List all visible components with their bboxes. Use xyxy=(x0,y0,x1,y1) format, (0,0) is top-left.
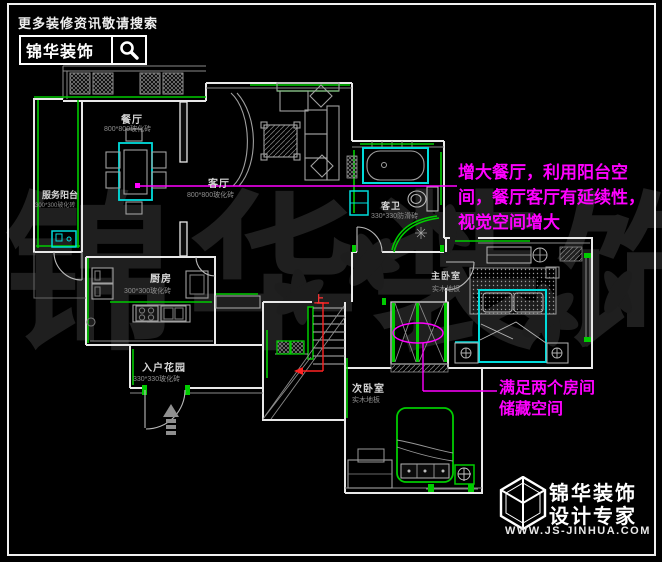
room-label-living: 客厅 xyxy=(208,175,230,190)
balcony-note-line3: 视觉空间增大 xyxy=(458,210,645,235)
balcony-door xyxy=(54,252,82,280)
room-material-dining: 800*800玻化砖 xyxy=(104,124,151,134)
room-label-kitchen: 厨房 xyxy=(150,270,172,285)
room-material-second-bedroom: 实木地板 xyxy=(352,395,380,405)
storage-note-line1: 满足两个房间 xyxy=(499,378,595,399)
balcony-note-line1: 增大餐厅，利用阳台空 xyxy=(458,160,645,185)
floorplan-canvas: 锦华装饰 xyxy=(0,0,662,562)
room-label-entry-garden: 入户花园 xyxy=(142,359,186,374)
sofa-seat xyxy=(305,134,327,158)
room-material-guest-bath: 330*330防滑砖 xyxy=(371,211,418,221)
living-room-furniture xyxy=(216,83,339,308)
room-material-service-balcony: 300*300玻化砖 xyxy=(35,200,75,209)
wall-pier xyxy=(347,156,357,178)
bathroom-fixtures xyxy=(347,148,438,239)
curtain-arc xyxy=(231,93,253,186)
footer-url[interactable]: WWW.JS-JINHUA.COM xyxy=(505,525,651,537)
header-tagline: 更多装修资讯敬请搜索 xyxy=(18,13,158,32)
brand-name: 锦华装饰 xyxy=(21,38,111,62)
sofa-back xyxy=(327,106,339,180)
balcony-note: 增大餐厅，利用阳台空 间，餐厅客厅有延续性， 视觉空间增大 xyxy=(458,160,645,235)
tv-cabinet xyxy=(216,296,260,308)
top-balcony xyxy=(63,66,206,99)
room-label-second-bedroom: 次卧室 xyxy=(352,380,385,395)
service-balcony-fixtures xyxy=(52,231,76,247)
sofa-seat xyxy=(280,91,308,111)
column xyxy=(291,341,304,354)
entry-door xyxy=(145,390,185,429)
second-bedroom-furniture xyxy=(348,408,474,488)
shower-head xyxy=(415,227,427,239)
stairs-up-label: 上 xyxy=(314,291,324,306)
planter-boxes xyxy=(70,73,183,94)
storage-note-line2: 储藏空间 xyxy=(499,399,595,420)
room-material-living: 800*800玻化砖 xyxy=(187,190,234,200)
room-material-master-bedroom: 实木地板 xyxy=(432,284,460,294)
dining-table-set xyxy=(106,129,166,214)
kitchen-fixtures xyxy=(87,268,208,326)
kitchen-door xyxy=(196,257,215,276)
chair xyxy=(106,172,120,188)
chair xyxy=(106,152,120,168)
sofa-seat xyxy=(305,110,327,134)
balcony-note-line2: 间，餐厅客厅有延续性， xyxy=(458,185,645,210)
entry-direction-arrow xyxy=(163,404,179,435)
room-material-entry-garden: 330*330玻化砖 xyxy=(133,374,180,384)
search-icon[interactable] xyxy=(113,40,145,60)
chair xyxy=(126,202,142,214)
tv xyxy=(560,247,582,261)
room-label-master-bedroom: 主卧室 xyxy=(431,269,461,282)
toilet xyxy=(408,187,438,211)
room-material-kitchen: 300*300玻化砖 xyxy=(124,286,171,296)
column xyxy=(277,341,290,354)
brand-search-box[interactable]: 锦华装饰 xyxy=(19,35,147,65)
chair xyxy=(152,152,166,168)
storage-note: 满足两个房间 储藏空间 xyxy=(499,378,595,420)
coffee-table xyxy=(261,122,300,160)
